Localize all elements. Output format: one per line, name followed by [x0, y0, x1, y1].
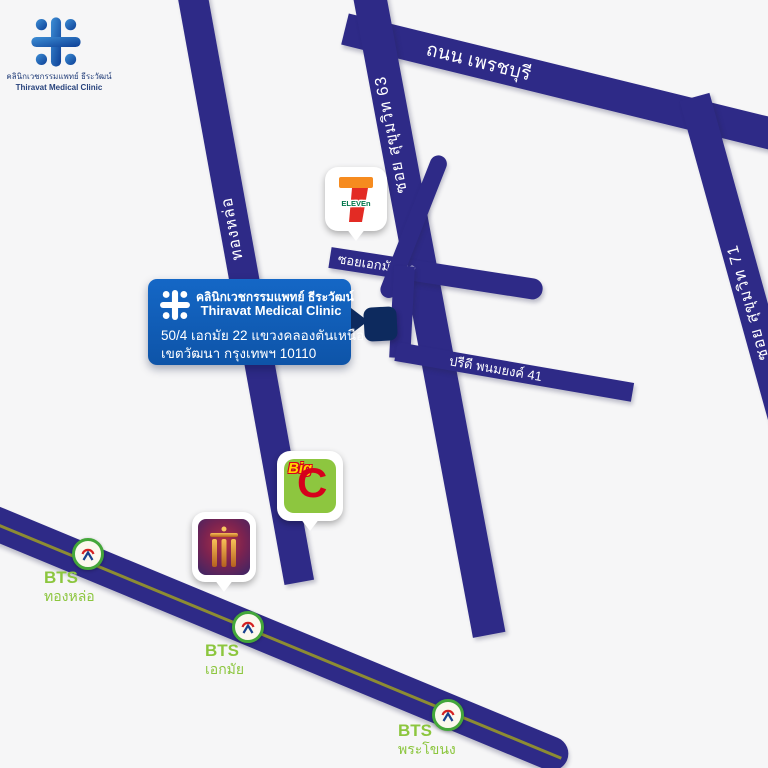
callout-clinic-name-en: Thiravat Medical Clinic — [196, 303, 346, 318]
road-label-phetchaburi: ถนน เพรชบุรี — [423, 33, 535, 90]
big-c-icon: Big C — [284, 459, 336, 513]
bts-station-label-ekkamai: BTS เอกมัย — [205, 641, 244, 677]
clinic-location-map: ถนน เพรชบุรี ซอย สุขุมวิท 63 ทองหล่อ ซอย… — [0, 0, 768, 768]
road-sukhumvit-71: ซอย สุขุมวิท 71 — [680, 93, 768, 742]
road-label-pridi-banomyong-41: ปรีดี พนมยงค์ 41 — [448, 351, 544, 386]
clinic-callout: คลินิกเวชกรรมแพทย์ ธีระวัฒน์ Thiravat Me… — [148, 279, 351, 365]
clinic-location-marker — [363, 306, 398, 342]
bts-brand-text: BTS — [398, 721, 456, 741]
callout-address-line2: เขตวัฒนา กรุงเทพฯ 10110 — [161, 342, 316, 364]
road-label-sukhumvit-71: ซอย สุขุมวิท 71 — [708, 194, 768, 409]
bts-station-name: พระโขนง — [398, 741, 456, 757]
clinic-logo-icon — [158, 288, 192, 322]
landmark-pin — [192, 512, 256, 582]
big-c-pin: Big C — [277, 451, 343, 521]
brand-clinic-name-en: Thiravat Medical Clinic — [4, 83, 114, 94]
bts-station-icon-ekkamai — [232, 611, 264, 643]
bts-station-name: ทองหล่อ — [44, 588, 95, 604]
seven-eleven-icon: ELEVEn — [333, 173, 379, 225]
bts-station-name: เอกมัย — [205, 661, 244, 677]
bts-station-label-phra-khanong: BTS พระโขนง — [398, 721, 456, 757]
bts-brand-text: BTS — [44, 568, 95, 588]
bts-station-icon-thonglor — [72, 538, 104, 570]
bts-brand-text: BTS — [205, 641, 244, 661]
cinema-landmark-icon — [198, 519, 250, 575]
brand-clinic-name-th: คลินิกเวชกรรมแพทย์ ธีระวัฒน์ — [4, 72, 114, 83]
clinic-logo-icon — [26, 14, 86, 70]
seven-eleven-wordmark: ELEVEn — [341, 199, 371, 208]
big-c-letter: C — [297, 462, 327, 504]
seven-eleven-pin: ELEVEn — [325, 167, 387, 231]
bts-station-label-thonglor: BTS ทองหล่อ — [44, 568, 95, 604]
